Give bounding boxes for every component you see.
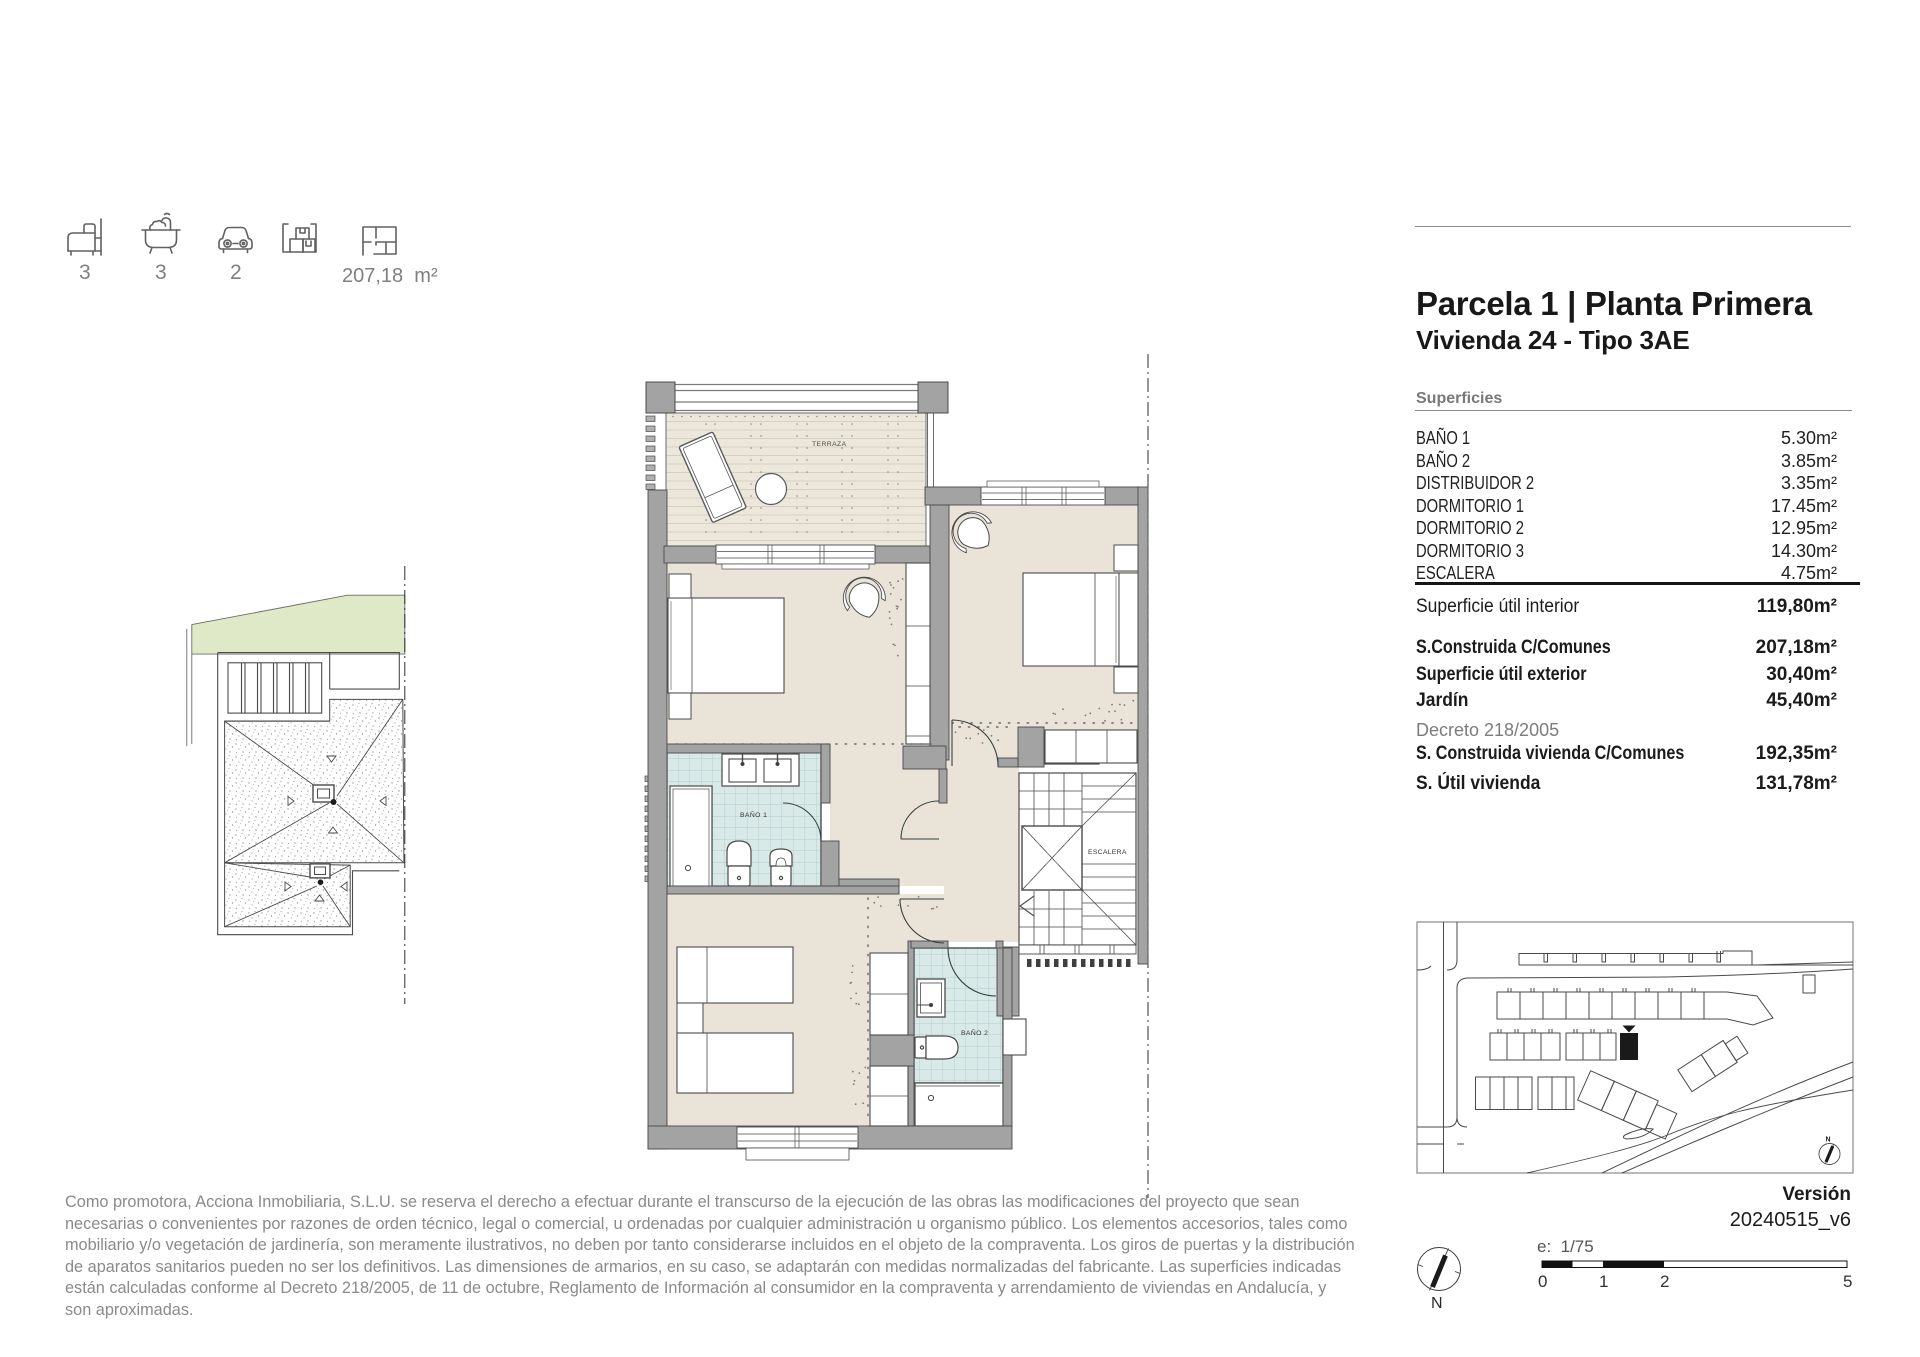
svg-text:BAÑO 1: BAÑO 1 bbox=[740, 810, 767, 819]
svg-text:2: 2 bbox=[230, 261, 242, 284]
svg-text:TERRAZA: TERRAZA bbox=[812, 441, 847, 448]
svg-text:3: 3 bbox=[155, 261, 167, 284]
svg-text:207,18 m²: 207,18 m² bbox=[342, 265, 438, 287]
svg-text:ESCALERA: ESCALERA bbox=[1088, 849, 1127, 856]
svg-text:3: 3 bbox=[79, 261, 91, 284]
svg-text:5: 5 bbox=[1843, 1272, 1852, 1291]
svg-text:e: 1/75: e: 1/75 bbox=[1537, 1237, 1594, 1256]
svg-text:N: N bbox=[1826, 1137, 1831, 1144]
svg-text:N: N bbox=[1431, 1295, 1443, 1312]
svg-text:1: 1 bbox=[1599, 1272, 1608, 1291]
svg-text:2: 2 bbox=[1660, 1272, 1669, 1291]
svg-text:BAÑO 2: BAÑO 2 bbox=[961, 1028, 988, 1037]
svg-text:0: 0 bbox=[1538, 1272, 1547, 1291]
